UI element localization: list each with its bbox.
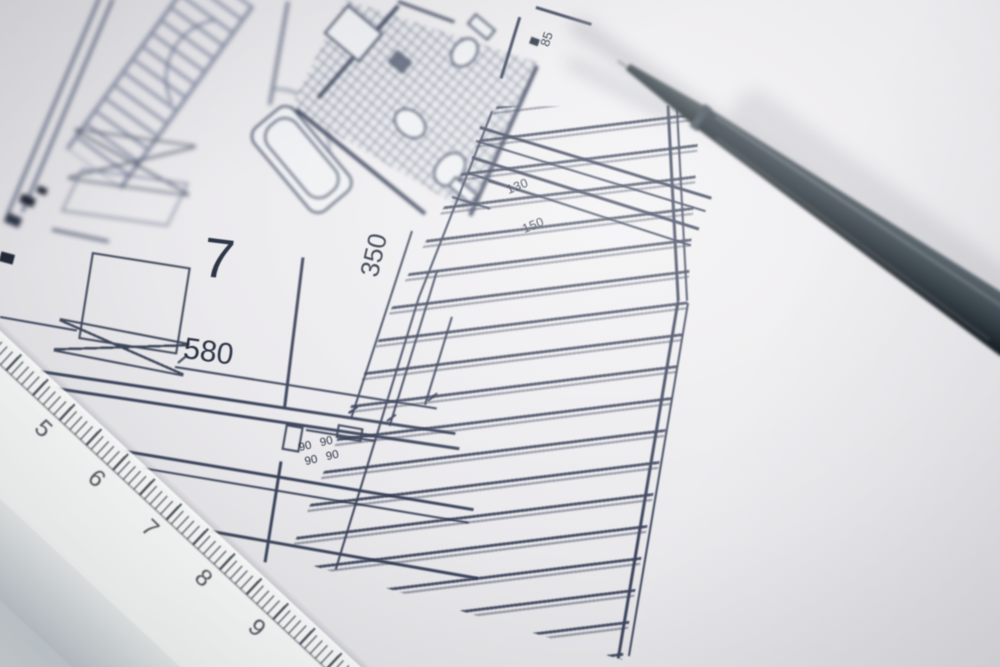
pen-shadow (0, 0, 1000, 667)
blueprint-photo: 7 580 350 130 150 85 9090 9090 (0, 0, 1000, 667)
